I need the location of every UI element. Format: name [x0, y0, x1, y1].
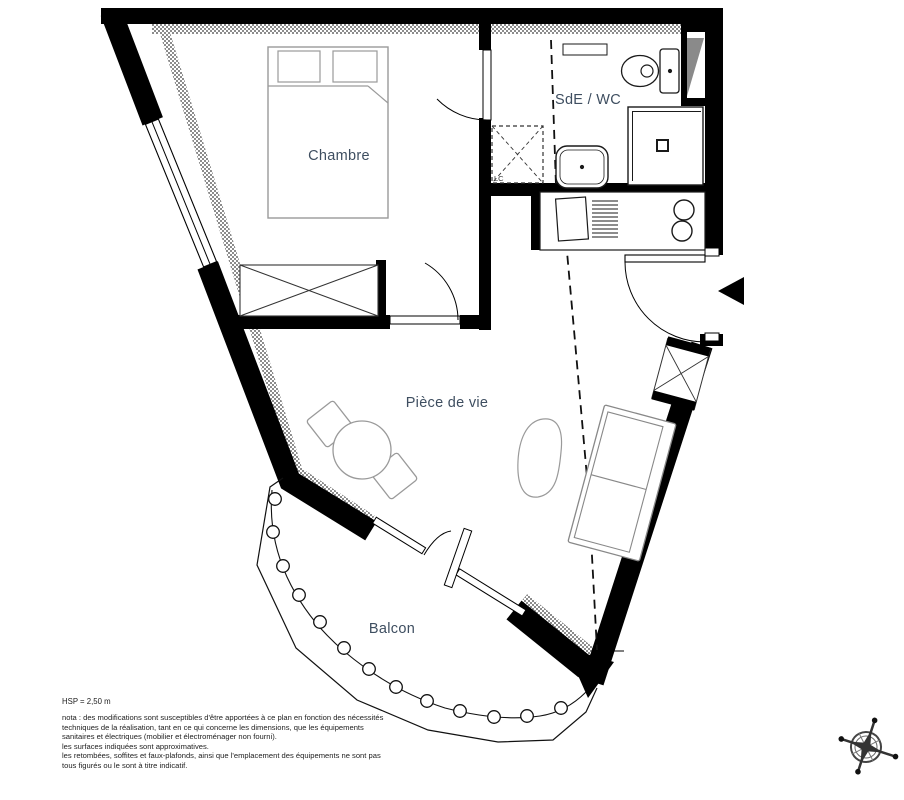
soffit-lines [551, 40, 597, 650]
soffit-line-sde [551, 40, 556, 186]
washbasin [556, 146, 608, 188]
wall-top [101, 8, 723, 24]
compass-south-dot [854, 768, 861, 775]
compass-rose-icon [830, 709, 904, 785]
nota-line: nota : des modifications sont susceptibl… [62, 713, 402, 723]
bathroom-fixtures [492, 44, 703, 188]
floor-plan-page: Chambre SdE / WC Pièce de vie Balcon LC … [0, 0, 904, 800]
wall-chambre-bottom [232, 315, 390, 329]
kitchen-sink [556, 197, 589, 241]
railing-post [338, 642, 351, 655]
railing-post [314, 616, 327, 629]
railing-post [277, 560, 290, 573]
door-swing-arc [425, 263, 458, 320]
nota-line: les surfaces indiquées sont approximativ… [62, 742, 402, 752]
bedroom-furniture [240, 47, 388, 316]
wall-chambre-sde-lower [479, 118, 491, 330]
railing-post [390, 681, 403, 694]
toilet-button [668, 69, 671, 72]
door-entrance [625, 248, 719, 342]
balcony-door-fixed-panel-1 [373, 517, 426, 554]
technical-shaft [681, 24, 711, 106]
door-chambre [390, 263, 460, 324]
wardrobe [240, 265, 378, 316]
nota-line: sanitaires et électriques (mobilier et é… [62, 732, 402, 742]
toilet-flush [641, 65, 653, 77]
room-label-chambre: Chambre [308, 148, 370, 164]
plan-notes: HSP = 2,50 m nota : des modifications so… [62, 697, 402, 771]
sofa [568, 405, 676, 561]
dining-table [333, 421, 391, 479]
toilet [622, 49, 680, 93]
floor-plan: Chambre SdE / WC Pièce de vie Balcon LC [0, 0, 904, 800]
railing-post [267, 526, 280, 539]
bed [268, 47, 388, 218]
entrance-arrow-icon [718, 277, 744, 305]
coffee-table [518, 419, 562, 497]
washbasin-drain [580, 165, 583, 168]
door-jamb-bottom [705, 333, 719, 341]
door-chambre-sde [437, 50, 491, 120]
wall-kitchen-stub [531, 196, 540, 250]
nota-line: techniques de la réalisation, tant en ce… [62, 723, 402, 733]
pillow-2 [333, 51, 377, 82]
railing-post [363, 663, 376, 676]
room-label-balcon: Balcon [369, 621, 415, 637]
railing-post [555, 702, 568, 715]
nota-line: les retombées, soffites et faux-plafonds… [62, 751, 402, 761]
room-label-lc: LC [494, 174, 504, 183]
kitchen [540, 192, 705, 250]
compass-west-dot [838, 735, 845, 742]
shower-tray [628, 107, 703, 185]
balcony-door-swing-arc [424, 531, 451, 555]
pillow-1 [278, 51, 320, 82]
nota-line: tous figurés ou le sont à titre indicati… [62, 761, 402, 771]
door-jamb-top [705, 248, 719, 256]
railing-post [521, 710, 534, 723]
door-swing-arc [625, 262, 705, 342]
railing-post [293, 589, 306, 602]
railing-post [269, 493, 282, 506]
railing-post [421, 695, 434, 708]
wall-chambre-sde-upper [479, 24, 491, 50]
door-leaf [483, 50, 491, 120]
door-leaf [390, 316, 460, 324]
balcony-door-fixed-panel-2 [456, 569, 526, 616]
compass-north-dot [871, 717, 878, 724]
balcony-door [373, 517, 526, 616]
railing-post [454, 705, 467, 718]
door-leaf [625, 255, 705, 262]
wall-chambre-bottom-stub [460, 315, 491, 329]
shower [628, 107, 703, 185]
shelf [563, 44, 607, 55]
room-label-sde-wc: SdE / WC [555, 92, 621, 108]
compass-east-dot [892, 753, 899, 760]
room-label-piece-de-vie: Pièce de vie [406, 395, 489, 411]
ceiling-height-note: HSP = 2,50 m [62, 697, 402, 706]
railing-post [488, 711, 501, 724]
entry-closet [651, 336, 710, 410]
door-swing-arc [437, 99, 487, 120]
soffit-line-living [562, 196, 597, 650]
